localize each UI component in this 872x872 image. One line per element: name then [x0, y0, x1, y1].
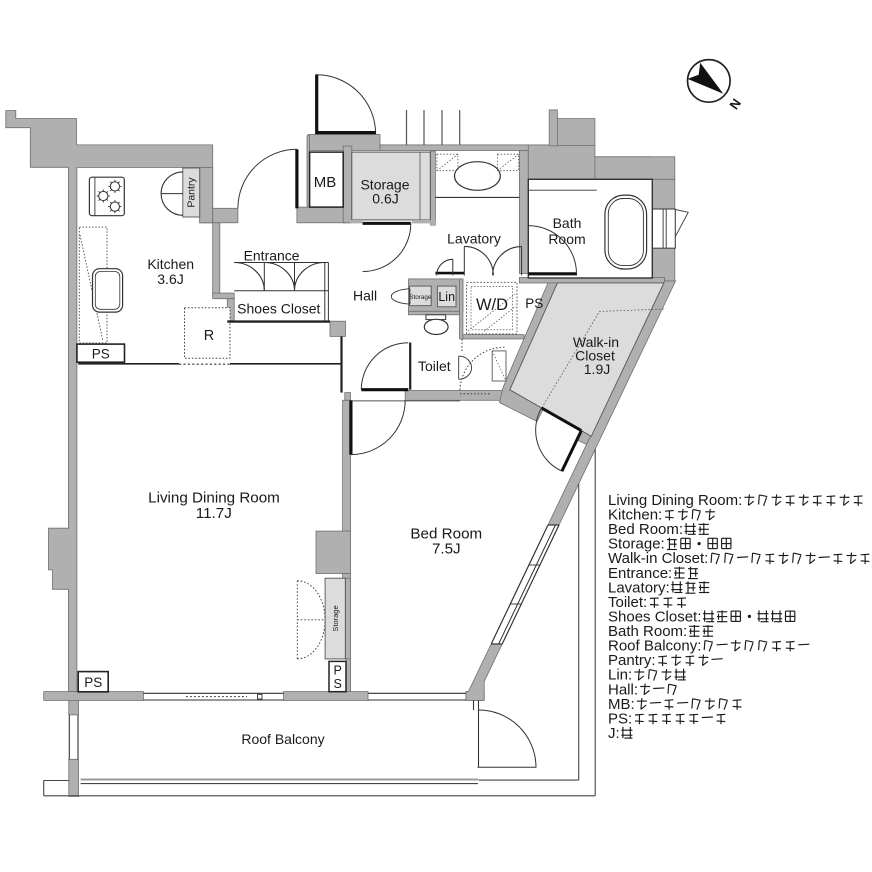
svg-text:W/D: W/D	[476, 296, 508, 314]
svg-text:1.9J: 1.9J	[584, 361, 610, 377]
svg-text:11.7J: 11.7J	[196, 505, 232, 522]
svg-text:P: P	[334, 664, 342, 678]
svg-text:3.6J: 3.6J	[157, 271, 183, 287]
svg-text:Entrance: Entrance	[244, 248, 300, 264]
svg-text:0.6J: 0.6J	[372, 191, 398, 207]
svg-text:Kitchen: Kitchen	[147, 256, 194, 272]
svg-text:Living Dining Room: Living Dining Room	[148, 490, 280, 507]
svg-text:PS: PS	[525, 296, 543, 311]
svg-text:7.5J: 7.5J	[432, 541, 461, 558]
svg-text:Roof Balcony: Roof Balcony	[241, 731, 324, 747]
svg-text:Storage: Storage	[409, 294, 432, 301]
svg-text:Hall: Hall	[353, 288, 377, 304]
svg-text:R: R	[204, 328, 214, 344]
svg-text:MB: MB	[314, 174, 337, 191]
svg-text:Toilet: Toilet	[418, 358, 451, 374]
svg-text:PS: PS	[84, 675, 102, 690]
svg-text:Bath: Bath	[553, 215, 582, 231]
svg-text:J:: J:	[608, 725, 620, 742]
svg-text:Lavatory: Lavatory	[447, 231, 501, 247]
svg-text:S: S	[334, 677, 342, 691]
svg-text:Storage: Storage	[331, 605, 340, 631]
svg-text:Pantry: Pantry	[186, 177, 198, 208]
svg-text:PS: PS	[92, 347, 110, 362]
svg-text:Shoes Closet: Shoes Closet	[237, 301, 320, 317]
svg-text:Lin: Lin	[438, 290, 455, 304]
